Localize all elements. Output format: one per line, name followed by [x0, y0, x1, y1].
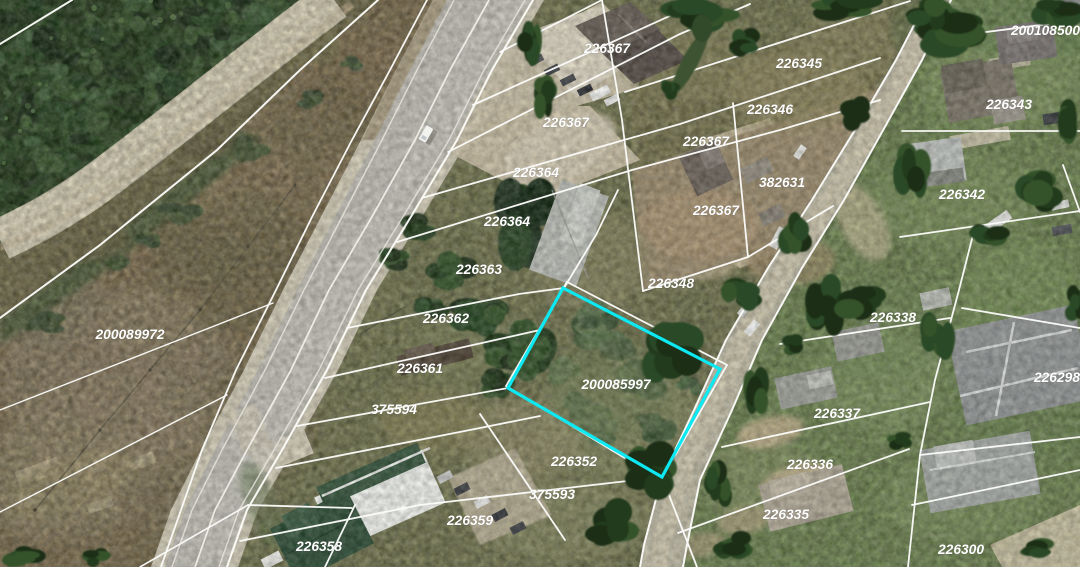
svg-text:226345: 226345	[775, 56, 822, 71]
svg-text:226348: 226348	[647, 276, 694, 291]
svg-text:226342: 226342	[938, 187, 985, 202]
svg-text:200085997: 200085997	[580, 377, 651, 392]
svg-text:375594: 375594	[371, 402, 417, 417]
svg-text:375593: 375593	[529, 487, 575, 502]
svg-text:226338: 226338	[869, 310, 916, 325]
svg-text:226343: 226343	[985, 97, 1032, 112]
svg-text:226364: 226364	[483, 214, 530, 229]
svg-text:226361: 226361	[396, 361, 443, 376]
svg-text:226298: 226298	[1033, 370, 1080, 385]
svg-text:226336: 226336	[786, 457, 833, 472]
svg-text:226300: 226300	[937, 542, 984, 557]
svg-text:226346: 226346	[746, 102, 793, 117]
svg-text:226337: 226337	[813, 406, 861, 421]
svg-text:200089972: 200089972	[94, 327, 164, 342]
svg-text:226367: 226367	[542, 115, 590, 130]
svg-text:200108500: 200108500	[1010, 23, 1080, 38]
svg-text:226335: 226335	[762, 507, 809, 522]
svg-text:226367: 226367	[692, 203, 740, 218]
svg-text:226358: 226358	[295, 539, 342, 554]
svg-text:226367: 226367	[583, 41, 631, 56]
svg-text:226363: 226363	[455, 262, 502, 277]
svg-text:226364: 226364	[512, 165, 559, 180]
svg-text:226352: 226352	[550, 454, 597, 469]
svg-text:382631: 382631	[759, 175, 805, 190]
svg-text:226359: 226359	[446, 513, 493, 528]
svg-text:226362: 226362	[422, 311, 469, 326]
svg-text:226367: 226367	[682, 134, 730, 149]
